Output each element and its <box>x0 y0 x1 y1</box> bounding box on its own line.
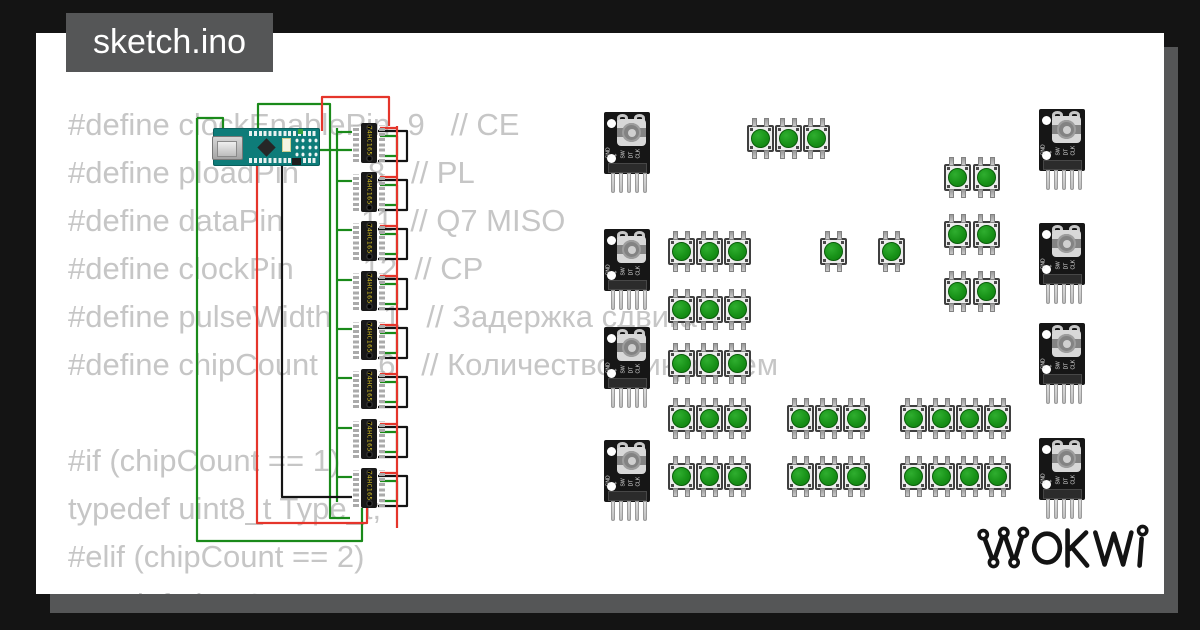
shift-register-chip[interactable]: 74HC165 <box>353 123 385 163</box>
button-screw <box>790 484 793 487</box>
button-leg <box>741 398 746 407</box>
shift-register-chip[interactable]: 74HC165 <box>353 419 385 459</box>
pushbutton[interactable] <box>973 164 1000 191</box>
button-screw <box>806 128 809 131</box>
encoder-shaft-center <box>628 246 636 254</box>
button-leg <box>949 303 954 312</box>
button-screw <box>1005 408 1008 411</box>
button-cap[interactable] <box>988 409 1007 428</box>
chip-body: 74HC165 <box>361 369 377 409</box>
button-leg <box>713 289 718 298</box>
header-pin <box>1078 384 1082 404</box>
button-cap[interactable] <box>700 409 719 428</box>
button-leg <box>713 398 718 407</box>
pushbutton[interactable] <box>668 350 695 377</box>
button-screw <box>717 259 720 262</box>
chip-label: 74HC165 <box>366 471 373 501</box>
pushbutton[interactable] <box>815 405 842 432</box>
button-leg <box>973 488 978 497</box>
rotary-encoder-module[interactable]: GND+SWDTCLK <box>604 440 650 522</box>
button-leg <box>860 430 865 439</box>
button-leg <box>949 214 954 223</box>
pin-header <box>608 163 647 173</box>
button-leg <box>949 189 954 198</box>
pin-labels: GND+SWDTCLK <box>609 265 646 279</box>
button-screw <box>824 128 827 131</box>
button-screw <box>994 167 997 170</box>
button-leg <box>820 430 825 439</box>
button-leg <box>729 343 734 352</box>
button-screw <box>750 128 753 131</box>
button-cap[interactable] <box>728 467 747 486</box>
button-screw <box>977 484 980 487</box>
button-cap[interactable] <box>882 242 901 261</box>
button-leg <box>883 263 888 272</box>
button-screw <box>671 484 674 487</box>
button-leg <box>741 375 746 384</box>
button-leg <box>1001 456 1006 465</box>
button-leg <box>741 321 746 330</box>
pin-label: CLK <box>1071 263 1085 270</box>
button-screw <box>727 484 730 487</box>
button-screw <box>717 317 720 320</box>
button-screw <box>689 484 692 487</box>
shift-register-chip[interactable]: 74HC165 <box>353 271 385 311</box>
button-screw <box>745 259 748 262</box>
file-tab: sketch.ino <box>66 13 273 72</box>
chip-pins-right <box>379 174 385 211</box>
header-pin <box>611 388 615 408</box>
pushbutton[interactable] <box>668 405 695 432</box>
button-cap[interactable] <box>948 225 967 244</box>
button-leg <box>701 263 706 272</box>
button-leg <box>729 488 734 497</box>
button-screw <box>959 484 962 487</box>
button-leg <box>848 430 853 439</box>
button-screw <box>994 281 997 284</box>
button-leg <box>729 263 734 272</box>
header-pin <box>643 388 647 408</box>
chip-body: 74HC165 <box>361 221 377 261</box>
button-leg <box>917 398 922 407</box>
header-pin <box>1046 499 1050 519</box>
button-screw <box>931 408 934 411</box>
button-cap[interactable] <box>977 168 996 187</box>
button-screw <box>977 408 980 411</box>
button-screw <box>931 426 934 429</box>
button-cap[interactable] <box>960 409 979 428</box>
button-leg <box>848 488 853 497</box>
button-screw <box>717 408 720 411</box>
button-leg <box>978 214 983 223</box>
button-screw <box>689 371 692 374</box>
button-leg <box>673 430 678 439</box>
pushbutton[interactable] <box>747 125 774 152</box>
pin-labels: GND+SWDTCLK <box>609 148 646 162</box>
rotary-encoder-module[interactable]: GND+SWDTCLK <box>1039 223 1085 305</box>
button-leg <box>945 488 950 497</box>
button-cap[interactable] <box>700 242 719 261</box>
button-screw <box>836 408 839 411</box>
pushbutton[interactable] <box>843 463 870 490</box>
button-cap[interactable] <box>791 409 810 428</box>
pushbutton[interactable] <box>900 405 927 432</box>
button-screw <box>965 167 968 170</box>
button-cap[interactable] <box>700 467 719 486</box>
header-pin <box>619 290 623 310</box>
encoder-shaft-center <box>1063 455 1071 463</box>
header-pin <box>1062 170 1066 190</box>
button-leg <box>820 150 825 159</box>
button-screw <box>745 371 748 374</box>
shift-register-chip[interactable]: 74HC165 <box>353 369 385 409</box>
button-leg <box>832 456 837 465</box>
button-screw <box>947 299 950 302</box>
pushbutton[interactable] <box>973 221 1000 248</box>
pushbutton[interactable] <box>843 405 870 432</box>
button-screw <box>717 371 720 374</box>
pin-label: CLK <box>1071 149 1085 156</box>
button-leg <box>713 488 718 497</box>
button-screw <box>717 299 720 302</box>
button-leg <box>685 456 690 465</box>
pushbutton[interactable] <box>984 463 1011 490</box>
header-pin <box>643 290 647 310</box>
pin-label: CLK <box>636 152 650 159</box>
button-cap[interactable] <box>932 409 951 428</box>
button-leg <box>860 488 865 497</box>
button-screw <box>921 426 924 429</box>
button-cap[interactable] <box>819 409 838 428</box>
header-pin <box>635 501 639 521</box>
button-screw <box>808 426 811 429</box>
pushbutton[interactable] <box>956 405 983 432</box>
button-screw <box>671 371 674 374</box>
button-cap[interactable] <box>791 467 810 486</box>
button-cap[interactable] <box>779 129 798 148</box>
button-screw <box>949 466 952 469</box>
button-leg <box>978 271 983 280</box>
button-screw <box>790 426 793 429</box>
nano-pad-grid <box>294 137 306 158</box>
button-leg <box>741 430 746 439</box>
file-tab-label: sketch.ino <box>93 23 246 61</box>
button-screw <box>671 317 674 320</box>
pushbutton[interactable] <box>696 296 723 323</box>
mounting-hole <box>1042 116 1051 125</box>
button-leg <box>780 150 785 159</box>
button-leg <box>973 430 978 439</box>
button-screw <box>717 426 720 429</box>
button-leg <box>741 231 746 240</box>
rotary-encoder-module[interactable]: GND+SWDTCLK <box>1039 438 1085 520</box>
pushbutton[interactable] <box>984 405 1011 432</box>
button-leg <box>945 398 950 407</box>
pin-label: CLK <box>636 367 650 374</box>
button-cap[interactable] <box>824 242 843 261</box>
button-cap[interactable] <box>728 409 747 428</box>
rotary-encoder-module[interactable]: GND+SWDTCLK <box>604 112 650 194</box>
button-cap[interactable] <box>807 129 826 148</box>
pushbutton[interactable] <box>775 125 802 152</box>
button-screw <box>808 484 811 487</box>
pushbutton[interactable] <box>724 405 751 432</box>
button-screw <box>671 466 674 469</box>
button-cap[interactable] <box>672 354 691 373</box>
pushbutton[interactable] <box>724 238 751 265</box>
pushbutton[interactable] <box>944 164 971 191</box>
pushbutton[interactable] <box>696 405 723 432</box>
button-leg <box>961 303 966 312</box>
button-screw <box>823 259 826 262</box>
pushbutton[interactable] <box>787 405 814 432</box>
pushbutton[interactable] <box>724 463 751 490</box>
shift-register-chip[interactable]: 74HC165 <box>353 172 385 212</box>
chip-pins-right <box>379 273 385 310</box>
button-screw <box>949 484 952 487</box>
button-cap[interactable] <box>847 409 866 428</box>
button-leg <box>685 430 690 439</box>
button-screw <box>864 408 867 411</box>
mounting-hole <box>607 334 616 343</box>
button-screw <box>959 426 962 429</box>
header-pin <box>643 173 647 193</box>
pin-label: CLK <box>636 269 650 276</box>
button-leg <box>741 456 746 465</box>
button-screw <box>976 242 979 245</box>
rotary-encoder-module[interactable]: GND+SWDTCLK <box>1039 109 1085 191</box>
pushbutton[interactable] <box>815 463 842 490</box>
button-cap[interactable] <box>728 242 747 261</box>
button-leg <box>837 231 842 240</box>
code-line: typedef uint16_t Type_t; <box>68 581 778 594</box>
shift-register-chip[interactable]: 74HC165 <box>353 320 385 360</box>
button-screw <box>864 484 867 487</box>
button-leg <box>780 118 785 127</box>
chip-body: 74HC165 <box>361 320 377 360</box>
pin-labels: GND+SWDTCLK <box>609 476 646 490</box>
pushbutton[interactable] <box>787 463 814 490</box>
button-screw <box>881 259 884 262</box>
button-leg <box>1001 398 1006 407</box>
button-screw <box>994 185 997 188</box>
button-cap[interactable] <box>960 467 979 486</box>
button-cap[interactable] <box>904 409 923 428</box>
header-pin <box>627 290 631 310</box>
button-screw <box>977 426 980 429</box>
button-leg <box>990 303 995 312</box>
button-screw <box>947 167 950 170</box>
button-cap[interactable] <box>932 467 951 486</box>
encoder-shaft-center <box>628 457 636 465</box>
pushbutton[interactable] <box>696 350 723 377</box>
header-pin <box>619 388 623 408</box>
header-pin <box>627 173 631 193</box>
header-pin <box>1054 384 1058 404</box>
button-screw <box>824 146 827 149</box>
pin-header <box>608 378 647 388</box>
button-leg <box>713 263 718 272</box>
button-cap[interactable] <box>988 467 1007 486</box>
button-screw <box>699 317 702 320</box>
button-cap[interactable] <box>948 168 967 187</box>
button-leg <box>825 231 830 240</box>
button-screw <box>846 466 849 469</box>
button-leg <box>961 189 966 198</box>
button-screw <box>745 317 748 320</box>
button-cap[interactable] <box>728 300 747 319</box>
pushbutton[interactable] <box>696 463 723 490</box>
button-cap[interactable] <box>672 467 691 486</box>
header-pin <box>627 501 631 521</box>
button-leg <box>673 398 678 407</box>
button-leg <box>685 321 690 330</box>
button-leg <box>673 343 678 352</box>
pushbutton[interactable] <box>944 221 971 248</box>
button-leg <box>949 157 954 166</box>
button-leg <box>949 271 954 280</box>
rotary-encoder-module[interactable]: GND+SWDTCLK <box>1039 323 1085 405</box>
button-cap[interactable] <box>904 467 923 486</box>
button-cap[interactable] <box>700 300 719 319</box>
rotary-encoder-module[interactable]: GND+SWDTCLK <box>604 327 650 409</box>
button-screw <box>689 353 692 356</box>
button-leg <box>701 488 706 497</box>
chip-pins-right <box>379 371 385 408</box>
button-cap[interactable] <box>977 282 996 301</box>
pushbutton[interactable] <box>724 296 751 323</box>
arduino-nano[interactable] <box>213 128 320 166</box>
button-screw <box>808 466 811 469</box>
header-pin <box>619 173 623 193</box>
button-screw <box>965 299 968 302</box>
pushbutton[interactable] <box>668 296 695 323</box>
button-leg <box>990 189 995 198</box>
chip-dot <box>366 352 373 359</box>
button-screw <box>836 466 839 469</box>
chip-body: 74HC165 <box>361 468 377 508</box>
button-screw <box>790 466 793 469</box>
button-screw <box>699 466 702 469</box>
encoder-shaft-center <box>1063 240 1071 248</box>
pushbutton[interactable] <box>724 350 751 377</box>
button-cap[interactable] <box>728 354 747 373</box>
chip-pins-right <box>379 470 385 507</box>
scene: #define clockEnablePin 9 // CE#define pl… <box>36 33 1164 594</box>
button-leg <box>989 430 994 439</box>
button-screw <box>846 426 849 429</box>
button-leg <box>729 289 734 298</box>
button-leg <box>804 398 809 407</box>
button-leg <box>945 456 950 465</box>
button-cap[interactable] <box>948 282 967 301</box>
button-screw <box>745 484 748 487</box>
wokwi-logo <box>975 519 1155 575</box>
button-leg <box>764 118 769 127</box>
button-cap[interactable] <box>672 409 691 428</box>
shift-register-chip[interactable]: 74HC165 <box>353 468 385 508</box>
button-screw <box>903 484 906 487</box>
header-pin <box>1070 170 1074 190</box>
nano-pin-row-bottom <box>249 158 317 163</box>
pushbutton[interactable] <box>928 405 955 432</box>
button-cap[interactable] <box>751 129 770 148</box>
pushbutton[interactable] <box>668 463 695 490</box>
pushbutton[interactable] <box>820 238 847 265</box>
button-leg <box>978 303 983 312</box>
button-cap[interactable] <box>977 225 996 244</box>
button-leg <box>792 150 797 159</box>
button-cap[interactable] <box>672 300 691 319</box>
button-leg <box>961 430 966 439</box>
button-screw <box>836 426 839 429</box>
pushbutton[interactable] <box>668 238 695 265</box>
pushbutton[interactable] <box>803 125 830 152</box>
chip-label: 74HC165 <box>366 224 373 254</box>
pin-header <box>1043 374 1082 384</box>
button-cap[interactable] <box>700 354 719 373</box>
pushbutton[interactable] <box>878 238 905 265</box>
pushbutton[interactable] <box>696 238 723 265</box>
button-screw <box>987 426 990 429</box>
button-cap[interactable] <box>819 467 838 486</box>
button-leg <box>905 398 910 407</box>
button-screw <box>903 426 906 429</box>
code-line: #elif (chipCount == 2) <box>68 533 778 581</box>
button-screw <box>965 185 968 188</box>
header-pin <box>1062 499 1066 519</box>
button-screw <box>808 408 811 411</box>
button-leg <box>990 214 995 223</box>
header-pin <box>1070 284 1074 304</box>
button-screw <box>836 484 839 487</box>
pushbutton[interactable] <box>944 278 971 305</box>
header-pin <box>611 501 615 521</box>
button-screw <box>689 241 692 244</box>
mounting-hole <box>1042 230 1051 239</box>
shift-register-chip[interactable]: 74HC165 <box>353 221 385 261</box>
button-leg <box>701 456 706 465</box>
button-leg <box>917 488 922 497</box>
pin-labels: GND+SWDTCLK <box>1044 145 1081 159</box>
button-leg <box>1001 430 1006 439</box>
pushbutton[interactable] <box>900 463 927 490</box>
button-screw <box>717 466 720 469</box>
button-leg <box>808 150 813 159</box>
button-cap[interactable] <box>847 467 866 486</box>
button-screw <box>745 241 748 244</box>
pushbutton[interactable] <box>973 278 1000 305</box>
button-screw <box>977 466 980 469</box>
button-screw <box>994 242 997 245</box>
pushbutton[interactable] <box>928 463 955 490</box>
button-leg <box>832 398 837 407</box>
rotary-encoder-module[interactable]: GND+SWDTCLK <box>604 229 650 311</box>
button-screw <box>796 146 799 149</box>
button-screw <box>947 281 950 284</box>
button-screw <box>745 408 748 411</box>
button-leg <box>701 289 706 298</box>
chip-label: 74HC165 <box>366 126 373 156</box>
button-screw <box>921 466 924 469</box>
button-cap[interactable] <box>672 242 691 261</box>
button-screw <box>959 466 962 469</box>
pin-label: CLK <box>636 480 650 487</box>
pushbutton[interactable] <box>956 463 983 490</box>
button-leg <box>752 150 757 159</box>
button-leg <box>820 456 825 465</box>
button-leg <box>685 488 690 497</box>
